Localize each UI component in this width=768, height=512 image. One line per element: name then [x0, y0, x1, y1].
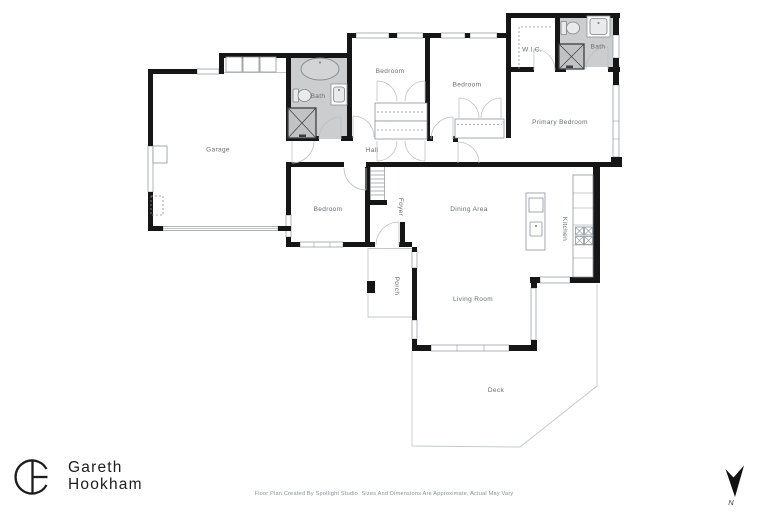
door-entry — [376, 222, 399, 245]
floorplan-page: Garage Bath Bedroom Bedroom W.I.C. Bath … — [0, 0, 768, 512]
door-hall-closet-left — [377, 141, 397, 161]
room-label-hall: Hall — [366, 147, 379, 154]
door-primary-bedroom — [458, 142, 479, 163]
door-bedroom-top-right — [431, 117, 453, 139]
room-label-primary-bedroom: Primary Bedroom — [532, 119, 588, 126]
sink-primary-icon — [587, 16, 610, 37]
door-bedroom-top-left — [353, 116, 374, 138]
deck-outline — [412, 284, 597, 447]
north-label: N — [728, 498, 734, 507]
room-label-deck: Deck — [488, 387, 505, 394]
door-bed1-closet-right — [405, 81, 425, 101]
kitchen-island — [526, 193, 545, 250]
brand-logo-icon — [16, 461, 48, 494]
north-arrow-icon: N — [726, 466, 745, 508]
porch-pillar — [367, 281, 375, 293]
room-label-bath-primary: Bath — [591, 44, 606, 51]
room-label-living-room: Living Room — [453, 296, 493, 303]
bathtub-icon — [301, 58, 339, 80]
room-label-bedroom-top-right: Bedroom — [453, 82, 482, 89]
brand-name-line2: Hookham — [68, 476, 143, 493]
door-bed2-closet-left — [459, 98, 479, 118]
room-label-dining-area: Dining Area — [450, 206, 487, 213]
sink-icon — [331, 84, 347, 105]
brand-name-line1: Gareth — [68, 459, 123, 476]
door-garage-hall — [292, 141, 314, 163]
shower-primary-icon — [559, 44, 584, 69]
footer-disclaimer: Floor Plan Created By Spotlight Studio. … — [255, 491, 514, 497]
room-label-foyer: Foyer — [397, 198, 404, 217]
door-hall-closet-right — [405, 141, 425, 161]
door-bedroom-middle — [344, 168, 366, 190]
windows — [148, 33, 619, 351]
door-bed1-closet-left — [377, 81, 397, 101]
room-label-bedroom-top-left: Bedroom — [376, 68, 405, 75]
toilet-primary-icon — [561, 22, 580, 35]
room-label-wic: W.I.C. — [522, 47, 542, 54]
room-label-kitchen: Kitchen — [561, 217, 568, 241]
floorplan-drawing: Garage Bath Bedroom Bedroom W.I.C. Bath … — [0, 0, 768, 512]
toilet-icon — [293, 89, 311, 102]
room-label-bath-upper: Bath — [311, 93, 326, 100]
shower-icon — [288, 108, 316, 138]
door-bed2-closet-right — [481, 98, 501, 118]
walls — [148, 13, 622, 351]
brand: Gareth Hookham — [16, 459, 143, 494]
stairs — [371, 167, 385, 200]
room-label-garage: Garage — [206, 147, 230, 154]
room-label-porch: Porch — [393, 277, 400, 296]
kitchen-counter — [573, 175, 593, 277]
room-label-bedroom-middle: Bedroom — [314, 206, 343, 213]
